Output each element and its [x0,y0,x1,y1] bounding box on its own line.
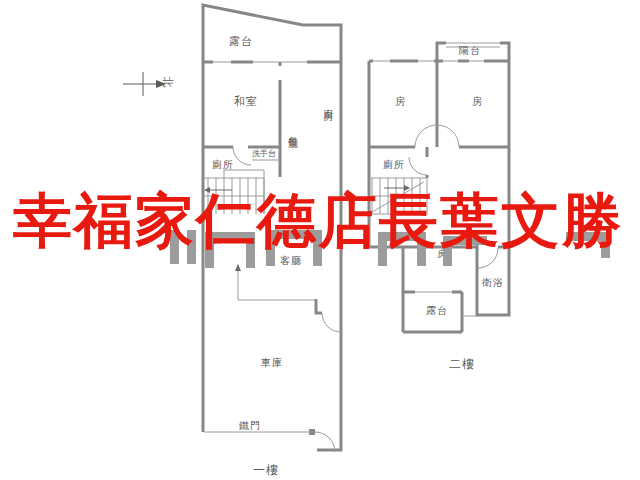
floor1-gate-label: 鐵門 [239,421,261,432]
floor1-garage-step-wall [316,299,322,313]
floor2-name-label: 二樓 [449,358,475,371]
red-watermark: 幸福家仁德店長葉文勝 [13,192,640,251]
floor1-toilet-label: 廁所 [212,160,234,171]
floor1-garage-label: 車庫 [261,358,283,369]
floor2-balcony-label: 陽台 [459,46,481,57]
floor2-room-left-door-arc [415,125,437,147]
floor1-dining-label: 餐廳 [287,128,298,132]
floor1-garage-door-arc [322,313,341,332]
floor1-terrace-label: 露台 [229,36,253,48]
floor1-tatami-label: 和室 [234,96,258,108]
living-garage-divider-line [238,265,316,300]
floor2-bath-label: 衛浴 [482,278,504,289]
floor2-room-right-label: 房 [472,97,483,108]
floor2-room-right-door-arc [437,125,459,147]
door-arcs [233,125,498,452]
floorplan-page: 露台 和室 廚房 餐廳 廁所 洗手台 客廳 車庫 鐵門 一樓 北 陽台 房 房 … [0,0,640,480]
floor2-toilet-door-arc [409,157,427,175]
floor2-terrace-label: 露台 [426,306,448,317]
floor1-kitchen-label: 廚房 [322,101,333,105]
floor1-toilet-door-arc [233,147,251,165]
north-compass-icon [123,72,166,96]
compass-north-label: 北 [161,77,173,89]
floor2-room-left-label: 房 [395,97,406,108]
floor2-toilet-label: 廁所 [383,160,405,171]
floor1-washbasin-label: 洗手台 [252,150,276,158]
floor1-name-label: 一樓 [253,464,279,477]
floor2-balcony-bath-outline [437,43,509,315]
compass-cross-lines [123,72,156,96]
